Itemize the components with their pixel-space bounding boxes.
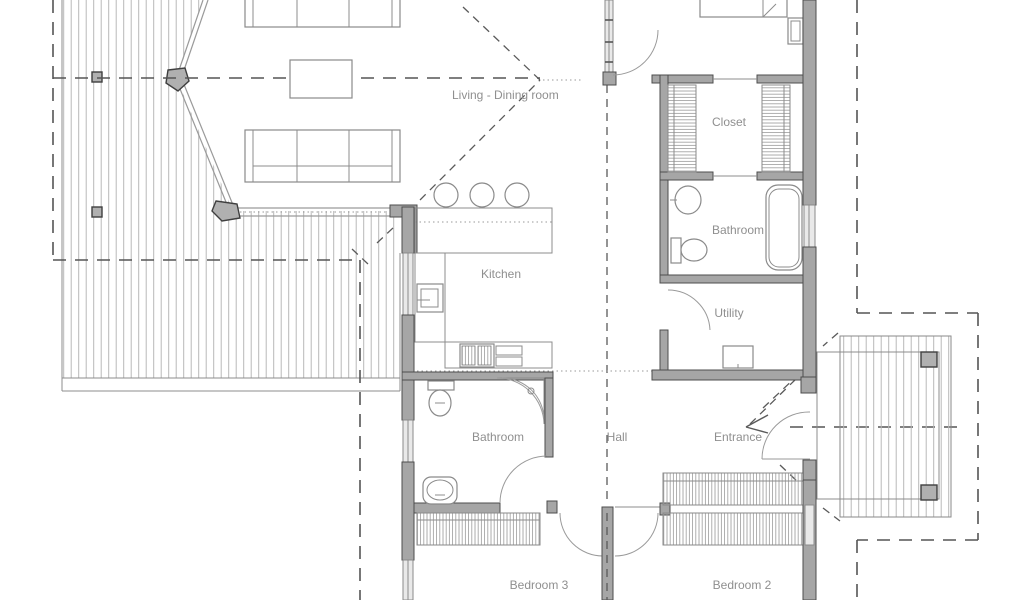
bedroom3-door-arc bbox=[560, 513, 603, 556]
room-label-utility: Utility bbox=[714, 306, 743, 320]
left-deck bbox=[62, 0, 400, 391]
room-label-hall: Hall bbox=[607, 430, 628, 444]
porch-post bbox=[921, 352, 937, 367]
bedroom3-wardrobe bbox=[417, 513, 540, 545]
bedroom2-walls bbox=[615, 503, 670, 515]
utility-door-arc bbox=[668, 290, 710, 330]
room-label-bedroom-3: Bedroom 3 bbox=[510, 578, 569, 592]
sink bbox=[670, 186, 701, 214]
room-label-entrance: Entrance bbox=[714, 430, 762, 444]
entry-arrow bbox=[746, 378, 797, 433]
front-door bbox=[762, 412, 810, 459]
kitchen-sink bbox=[417, 284, 443, 312]
roof-hip-lines bbox=[352, 7, 840, 521]
room-label-bedroom-2: Bedroom 2 bbox=[713, 578, 772, 592]
floor-plan: Living - Dining room Closet Bathroom Kit… bbox=[0, 0, 1024, 600]
north-room-door-arc bbox=[613, 30, 658, 75]
west-wall bbox=[402, 207, 414, 600]
toilet bbox=[428, 381, 454, 416]
bedroom2-door-arc bbox=[615, 513, 658, 556]
partition-wall bbox=[602, 507, 613, 600]
utility bbox=[652, 290, 816, 380]
floor-plan-page: Living - Dining room Closet Bathroom Kit… bbox=[0, 0, 1024, 600]
room-label-bathroom-bottom: Bathroom bbox=[472, 430, 524, 444]
deck-post bbox=[92, 207, 102, 217]
window bbox=[805, 505, 814, 545]
sofa bbox=[245, 0, 400, 27]
washer bbox=[723, 346, 753, 368]
deck-post bbox=[92, 72, 102, 82]
room-label-bathroom-top: Bathroom bbox=[712, 223, 764, 237]
sink bbox=[423, 477, 457, 504]
bed bbox=[700, 0, 787, 17]
bathroom-door-arc bbox=[500, 456, 547, 503]
stove bbox=[460, 344, 522, 367]
shower bbox=[497, 378, 544, 424]
bathroom-utility-wall bbox=[660, 275, 803, 283]
coffee-table bbox=[290, 60, 352, 98]
bedroom2-wardrobe bbox=[663, 473, 805, 545]
north-room-wall bbox=[603, 0, 616, 85]
east-wall bbox=[801, 0, 816, 600]
toilet bbox=[671, 238, 707, 263]
room-label-living-dining: Living - Dining room bbox=[452, 88, 559, 102]
room-label-kitchen: Kitchen bbox=[481, 267, 521, 281]
porch-post bbox=[921, 485, 937, 500]
room-label-closet: Closet bbox=[712, 115, 747, 129]
bathtub bbox=[766, 185, 802, 270]
nightstand bbox=[788, 18, 803, 44]
sofa bbox=[245, 130, 400, 182]
bar-stools bbox=[434, 183, 529, 207]
